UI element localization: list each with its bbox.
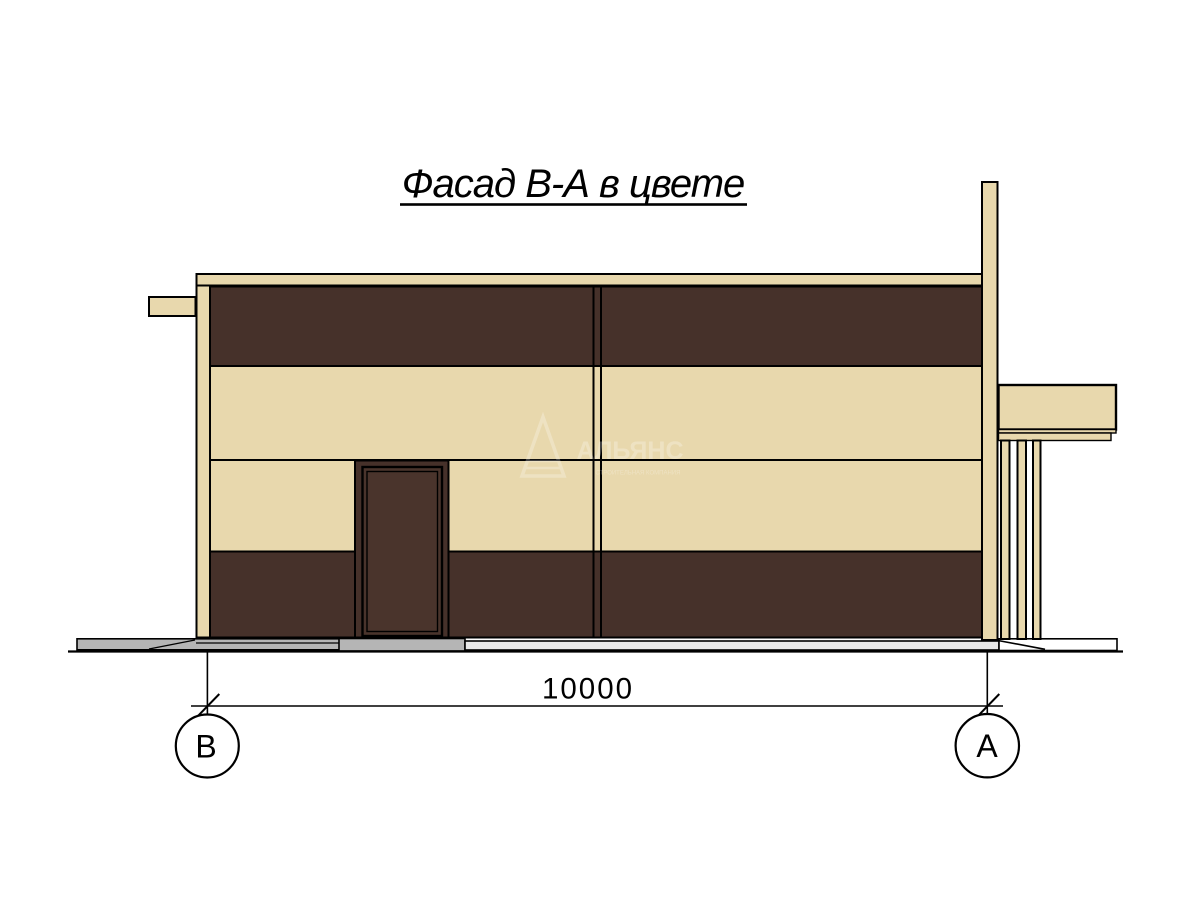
svg-text:АЛЬЯНС: АЛЬЯНС [577,437,684,465]
svg-text:Фасад В-А в цвете: Фасад В-А в цвете [402,162,745,206]
svg-text:СТРОИТЕЛЬНАЯ КОМПАНИЯ: СТРОИТЕЛЬНАЯ КОМПАНИЯ [596,471,681,477]
svg-text:10000: 10000 [542,673,634,706]
svg-text:А: А [976,728,998,764]
svg-text:В: В [195,729,216,765]
